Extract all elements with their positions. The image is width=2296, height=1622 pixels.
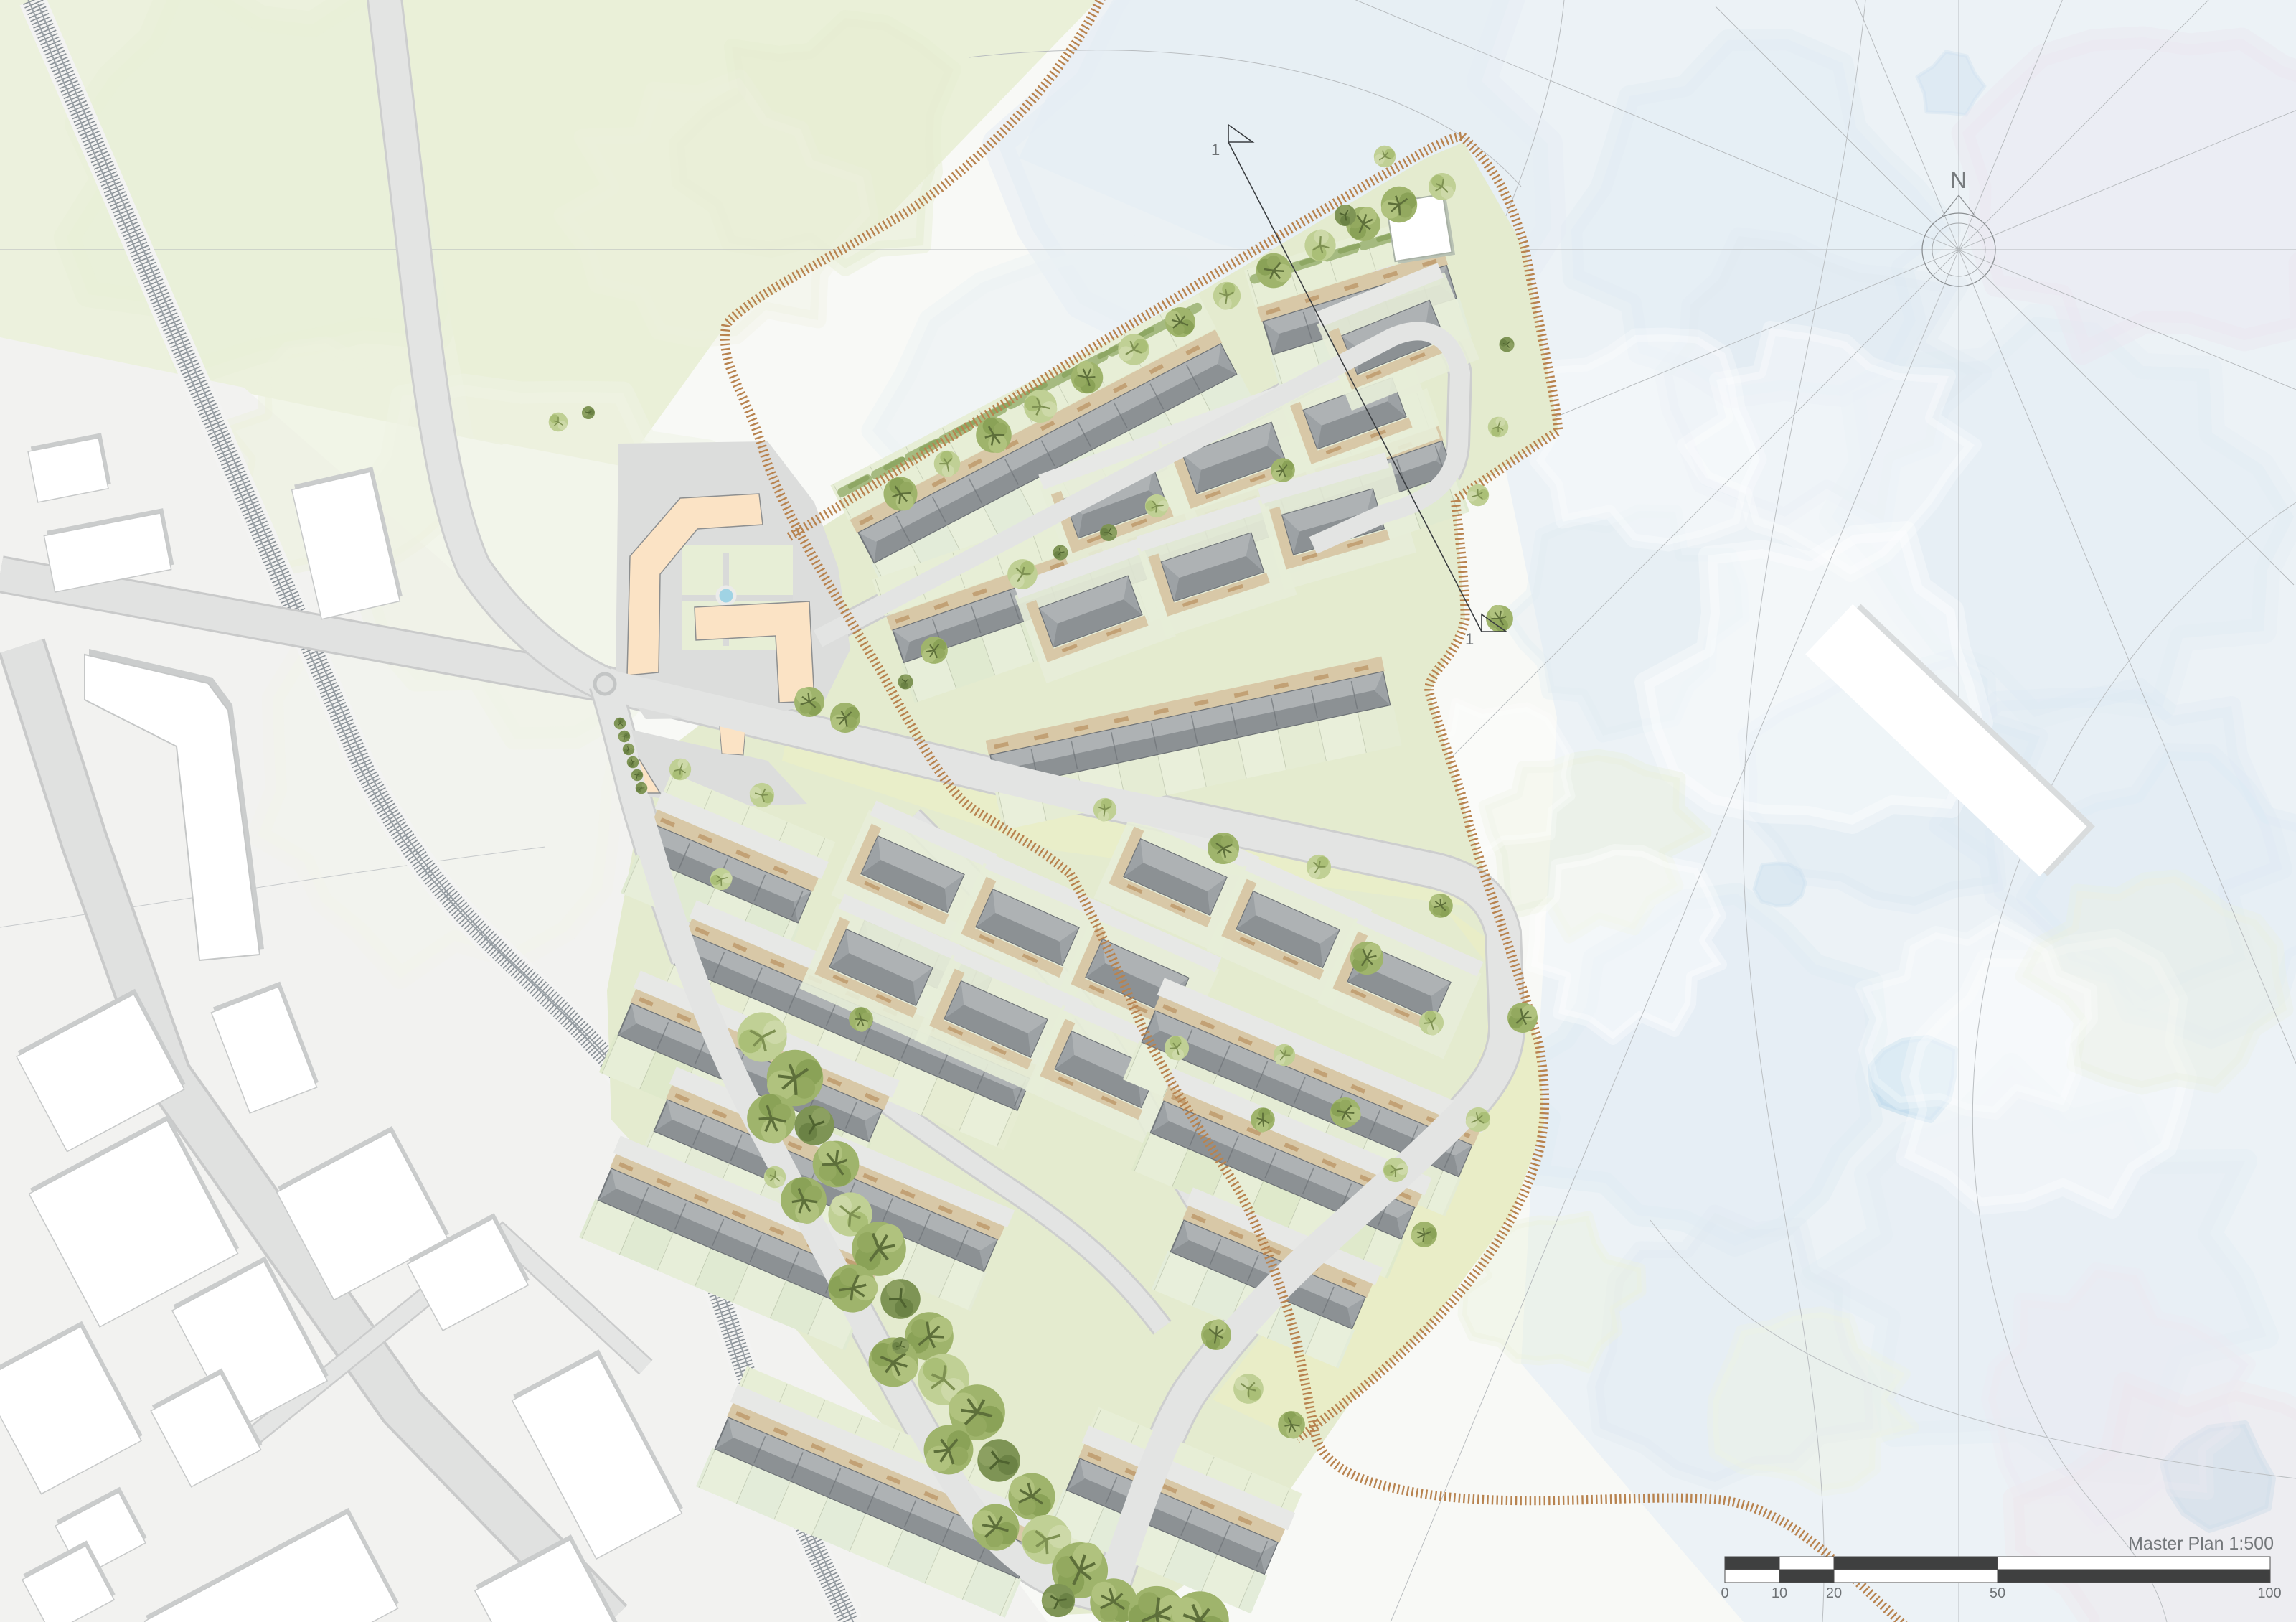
- svg-text:10: 10: [1772, 1585, 1787, 1601]
- svg-text:1: 1: [1465, 630, 1474, 648]
- svg-text:1: 1: [1211, 141, 1220, 159]
- svg-text:Master Plan 1:500: Master Plan 1:500: [2128, 1534, 2274, 1554]
- svg-text:N: N: [1950, 167, 1967, 193]
- svg-text:0: 0: [1721, 1585, 1728, 1601]
- svg-text:50: 50: [1990, 1585, 2005, 1601]
- svg-text:100: 100: [2257, 1585, 2281, 1601]
- svg-text:20: 20: [1826, 1585, 1842, 1601]
